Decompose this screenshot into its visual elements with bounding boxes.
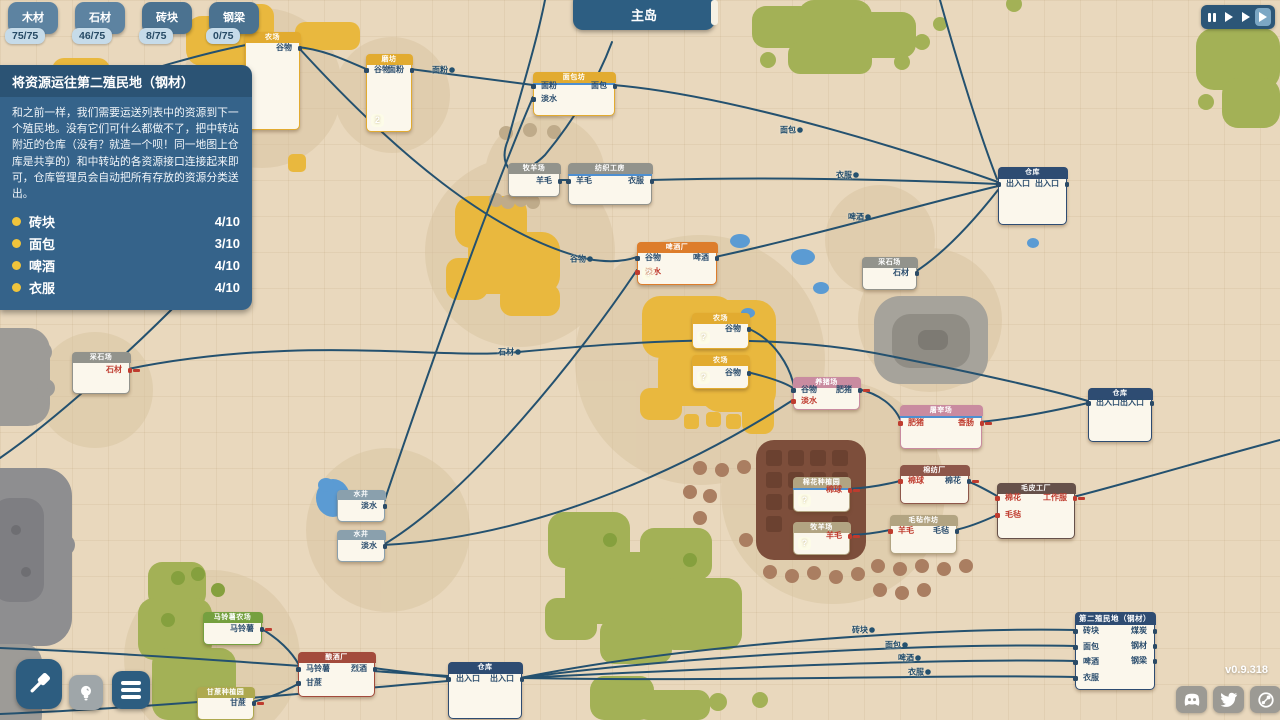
speed-1x-button[interactable] [1221, 8, 1237, 26]
port-淡水[interactable]: 淡水 [361, 540, 377, 551]
node-badge: ? [798, 537, 811, 550]
quest-item: 砖块4/10 [12, 210, 240, 232]
port-dot [791, 388, 796, 393]
island-title-banner[interactable]: 主岛 [573, 0, 715, 30]
port-面粉[interactable]: 面粉 [388, 64, 404, 75]
port-dot [1150, 401, 1155, 406]
quest-item: 啤酒4/10 [12, 254, 240, 276]
resource-count: 75/75 [5, 28, 45, 44]
port-棉球[interactable]: 棉球 [826, 484, 842, 495]
port-谷物[interactable]: 谷物 [276, 42, 292, 53]
port-dot [1073, 645, 1078, 650]
quest-item-progress: 4/10 [215, 280, 240, 295]
port-羊毛[interactable]: 羊毛 [576, 175, 592, 186]
port-石材[interactable]: 石材 [106, 364, 122, 375]
node-warehouse-bottom[interactable]: 仓库出入口出入口 [448, 662, 522, 719]
port-棉花[interactable]: 棉花 [945, 475, 961, 486]
port-dot [296, 681, 301, 686]
port-dot [888, 529, 893, 534]
port-出入口[interactable]: 出入口 [1035, 178, 1059, 189]
node-title: 农场 [692, 313, 750, 324]
port-出入口[interactable]: 出入口 [490, 673, 514, 684]
node-title: 水井 [337, 530, 386, 540]
node-felt-workshop[interactable]: 毛毡作坊羊毛毛毡 [890, 515, 957, 554]
quest-item-label: 面包 [29, 234, 55, 253]
port-dot [128, 368, 133, 373]
version-label: v0.9.318 [1225, 664, 1268, 676]
node-farm-mid1[interactable]: 农场谷物? [692, 313, 749, 349]
resource-count: 46/75 [72, 28, 112, 44]
quest-description: 和之前一样，我们需要运送列表中的资源到下一个殖民地。没有它们可什么都做不了，把中… [12, 105, 240, 202]
node-sugar-plantation[interactable]: 甘蔗种植园甘蔗 [197, 687, 254, 720]
quest-item-progress: 3/10 [215, 236, 240, 251]
port-dot [446, 677, 451, 682]
port-dot [995, 513, 1000, 518]
port-砖块[interactable]: 砖块 [1083, 625, 1099, 636]
port-dot [715, 256, 720, 261]
resource-name: 钢梁 [223, 12, 245, 24]
twitter-icon [1220, 692, 1238, 708]
node-title: 毛毡作坊 [890, 515, 958, 526]
port-dot [252, 701, 257, 706]
discord-icon [1182, 692, 1202, 708]
port-dot [1073, 496, 1078, 501]
play-icon [1225, 12, 1233, 22]
node-title: 第二殖民地（钢材） [1075, 612, 1156, 625]
port-面包[interactable]: 面包 [1083, 641, 1099, 652]
port-谷物[interactable]: 谷物 [725, 323, 741, 334]
port-stub [1078, 497, 1085, 500]
node-warehouse-topright[interactable]: 仓库出入口出入口 [998, 167, 1067, 225]
node-title: 牧羊场 [508, 163, 561, 174]
bullet-icon [12, 261, 21, 270]
lightbulb-icon [76, 682, 96, 704]
node-slaughterhouse[interactable]: 屠宰场肥猪香肠 [900, 405, 982, 449]
port-工作服[interactable]: 工作服 [1043, 492, 1067, 503]
steam-button[interactable] [1250, 686, 1280, 713]
node-garment-factory[interactable]: 毛皮工厂棉花毛毡工作服 [997, 483, 1075, 539]
port-dot [747, 327, 752, 332]
port-羊毛[interactable]: 羊毛 [536, 175, 552, 186]
node-bakery[interactable]: 面包坊面粉淡水面包 [533, 72, 615, 116]
port-dot [996, 182, 1001, 187]
banner-bookmark [711, 0, 718, 25]
port-dot [898, 421, 903, 426]
node-badge: ? [697, 331, 710, 344]
node-title: 纺织工房 [568, 163, 653, 174]
port-dot [955, 529, 960, 534]
node-potato-farm[interactable]: 马铃薯农场马铃薯 [203, 612, 262, 645]
node-warehouse-right[interactable]: 仓库出入口出入口 [1088, 388, 1152, 442]
build-button[interactable] [16, 659, 62, 709]
speed-controls [1201, 5, 1275, 29]
port-dot [531, 97, 536, 102]
port-马铃薯[interactable]: 马铃薯 [230, 623, 254, 634]
play-icon [1242, 12, 1250, 22]
port-出入口[interactable]: 出入口 [1006, 178, 1030, 189]
quest-title: 将资源运往第二殖民地（钢材） [0, 65, 252, 97]
game-map[interactable]: 面粉面包衣服啤酒谷物石材砖块面包啤酒衣服 农场谷物磨坊谷物面粉2面包坊面粉淡水面… [0, 0, 1280, 720]
port-stub [972, 480, 979, 483]
resource-count: 0/75 [206, 28, 240, 44]
port-毛毡[interactable]: 毛毡 [933, 525, 949, 536]
port-dot [650, 179, 655, 184]
resource-name: 石材 [89, 12, 111, 24]
port-面粉[interactable]: 面粉 [541, 80, 557, 91]
node-badge: ? [798, 494, 811, 507]
port-dot [848, 488, 853, 493]
node-badge: ? [697, 371, 710, 384]
port-啤酒[interactable]: 啤酒 [693, 252, 709, 263]
menu-button[interactable] [112, 671, 150, 709]
port-stub [853, 535, 860, 538]
port-dot [383, 504, 388, 509]
island-title: 主岛 [631, 5, 657, 24]
port-出入口[interactable]: 出入口 [1120, 397, 1144, 408]
port-dot [848, 534, 853, 539]
play-icon [1259, 12, 1267, 22]
resource-tab-3[interactable]: 砖块8/75 [142, 2, 192, 34]
port-dot [410, 68, 415, 73]
port-dot [980, 421, 985, 426]
port-钢材[interactable]: 钢材 [1131, 640, 1147, 651]
node-well-1[interactable]: 水井淡水 [337, 490, 385, 522]
node-title: 棉纺厂 [900, 465, 970, 476]
node-badge: ? [642, 267, 655, 280]
social-links [1176, 686, 1280, 713]
port-dot [1073, 629, 1078, 634]
speed-3x-button[interactable] [1255, 8, 1271, 26]
node-sheepfarm-bottom[interactable]: 牧羊场羊毛? [793, 522, 850, 555]
port-羊毛[interactable]: 羊毛 [898, 525, 914, 536]
port-dot [296, 667, 301, 672]
port-dot [791, 399, 796, 404]
quest-item: 面包3/10 [12, 232, 240, 254]
port-dot [383, 544, 388, 549]
quest-item-label: 砖块 [29, 212, 55, 231]
discord-button[interactable] [1176, 686, 1207, 713]
twitter-button[interactable] [1213, 686, 1244, 713]
port-dot [1065, 182, 1070, 187]
port-淡水[interactable]: 淡水 [541, 93, 557, 104]
port-谷物[interactable]: 谷物 [645, 252, 661, 263]
port-羊毛[interactable]: 羊毛 [826, 530, 842, 541]
port-淡水[interactable]: 淡水 [361, 500, 377, 511]
port-stub [985, 422, 992, 425]
port-dot [995, 496, 1000, 501]
port-衣服[interactable]: 衣服 [1083, 672, 1099, 683]
port-dot [1153, 644, 1158, 649]
port-啤酒[interactable]: 啤酒 [1083, 656, 1099, 667]
quest-panel: 将资源运往第二殖民地（钢材） 和之前一样，我们需要运送列表中的资源到下一个殖民地… [0, 65, 252, 310]
quest-item-progress: 4/10 [215, 258, 240, 273]
port-stub [853, 489, 860, 492]
port-dot [1086, 401, 1091, 406]
node-title: 水井 [337, 490, 386, 500]
port-stub [265, 628, 272, 631]
resource-name: 木材 [22, 12, 44, 24]
port-钢梁[interactable]: 钢梁 [1131, 655, 1147, 666]
node-colony[interactable]: 第二殖民地（钢材）砖块面包啤酒衣服煤炭钢材钢梁 [1075, 612, 1155, 690]
node-brewery[interactable]: 啤酒厂谷物淡水啤酒? [637, 242, 717, 285]
quest-body: 和之前一样，我们需要运送列表中的资源到下一个殖民地。没有它们可什么都做不了，把中… [0, 97, 252, 310]
node-farm-topleft[interactable]: 农场谷物 [245, 32, 300, 130]
port-dot [967, 479, 972, 484]
port-dot [747, 371, 752, 376]
port-肥猪[interactable]: 肥猪 [836, 384, 852, 395]
port-dot [1073, 660, 1078, 665]
port-dot [898, 479, 903, 484]
node-cotton-plantation[interactable]: 棉花种植园棉球? [793, 477, 850, 512]
port-出入口[interactable]: 出入口 [456, 673, 480, 684]
resource-tab-2[interactable]: 石材46/75 [75, 2, 125, 34]
pause-button[interactable] [1204, 8, 1220, 26]
node-textile[interactable]: 纺织工房羊毛衣服 [568, 163, 652, 205]
node-title: 采石场 [72, 352, 131, 363]
node-farm-mid2[interactable]: 农场谷物? [692, 355, 749, 389]
node-sheepfarm-top[interactable]: 牧羊场羊毛 [508, 163, 560, 197]
port-甘蔗[interactable]: 甘蔗 [306, 677, 322, 688]
node-pigfarm[interactable]: 养猪场谷物淡水肥猪 [793, 377, 860, 410]
port-dot [520, 677, 525, 682]
port-stub [863, 389, 870, 392]
port-dot [531, 84, 536, 89]
node-title: 采石场 [862, 257, 918, 268]
hint-button[interactable] [69, 675, 103, 710]
port-dot [558, 179, 563, 184]
quest-item: 衣服4/10 [12, 276, 240, 298]
port-棉花[interactable]: 棉花 [1005, 492, 1021, 503]
port-淡水[interactable]: 淡水 [801, 395, 817, 406]
bullet-icon [12, 239, 21, 248]
port-香肠[interactable]: 香肠 [958, 417, 974, 428]
node-title: 啤酒厂 [637, 242, 718, 253]
port-dot [298, 46, 303, 51]
node-well-2[interactable]: 水井淡水 [337, 530, 385, 562]
node-title: 农场 [692, 355, 750, 366]
node-badge: 2 [371, 114, 384, 127]
node-title: 仓库 [448, 662, 523, 674]
speed-2x-button[interactable] [1238, 8, 1254, 26]
quest-item-progress: 4/10 [215, 214, 240, 229]
port-stub [257, 702, 264, 705]
node-quarry-right[interactable]: 采石场石材 [862, 257, 917, 290]
port-肥猪[interactable]: 肥猪 [908, 417, 924, 428]
node-distillery[interactable]: 酿酒厂马铃薯甘蔗烈酒 [298, 652, 375, 697]
port-面包[interactable]: 面包 [591, 80, 607, 91]
quest-items: 砖块4/10面包3/10啤酒4/10衣服4/10 [12, 210, 240, 298]
port-毛毡[interactable]: 毛毡 [1005, 509, 1021, 520]
resource-count: 8/75 [139, 28, 173, 44]
hammer-icon [24, 669, 54, 699]
port-dot [1073, 676, 1078, 681]
port-dot [635, 270, 640, 275]
node-title: 屠宰场 [900, 405, 983, 416]
port-dot [613, 84, 618, 89]
steam-icon [1257, 691, 1275, 709]
port-dot [915, 271, 920, 276]
port-dot [566, 179, 571, 184]
node-quarry-left[interactable]: 采石场石材 [72, 352, 130, 394]
port-dot [635, 256, 640, 261]
port-谷物[interactable]: 谷物 [801, 384, 817, 395]
port-dot [1153, 629, 1158, 634]
port-棉球[interactable]: 棉球 [908, 475, 924, 486]
node-title: 磨坊 [366, 54, 413, 65]
port-甘蔗[interactable]: 甘蔗 [230, 697, 246, 708]
quest-item-label: 啤酒 [29, 256, 55, 275]
node-mill[interactable]: 磨坊谷物面粉2 [366, 54, 412, 132]
bullet-icon [12, 283, 21, 292]
port-烈酒[interactable]: 烈酒 [351, 663, 367, 674]
port-石材[interactable]: 石材 [893, 267, 909, 278]
quest-item-label: 衣服 [29, 278, 55, 297]
port-dot [364, 68, 369, 73]
resource-tab-1[interactable]: 木材75/75 [8, 2, 58, 34]
bullet-icon [12, 217, 21, 226]
port-dot [260, 627, 265, 632]
port-马铃薯[interactable]: 马铃薯 [306, 663, 330, 674]
hamburger-icon [121, 681, 141, 685]
port-dot [373, 667, 378, 672]
port-出入口[interactable]: 出入口 [1096, 397, 1120, 408]
port-stub [133, 369, 140, 372]
port-煤炭[interactable]: 煤炭 [1131, 625, 1147, 636]
node-title: 甘蔗种植园 [197, 687, 255, 698]
node-title: 酿酒厂 [298, 652, 376, 663]
port-衣服[interactable]: 衣服 [628, 175, 644, 186]
port-dot [1153, 659, 1158, 664]
resource-name: 砖块 [156, 12, 178, 24]
node-cotton-mill[interactable]: 棉纺厂棉球棉花 [900, 465, 969, 504]
resource-tab-4[interactable]: 钢梁0/75 [209, 2, 259, 34]
port-dot [858, 388, 863, 393]
node-title: 马铃薯农场 [203, 612, 263, 623]
port-谷物[interactable]: 谷物 [725, 367, 741, 378]
node-title: 仓库 [998, 167, 1068, 179]
